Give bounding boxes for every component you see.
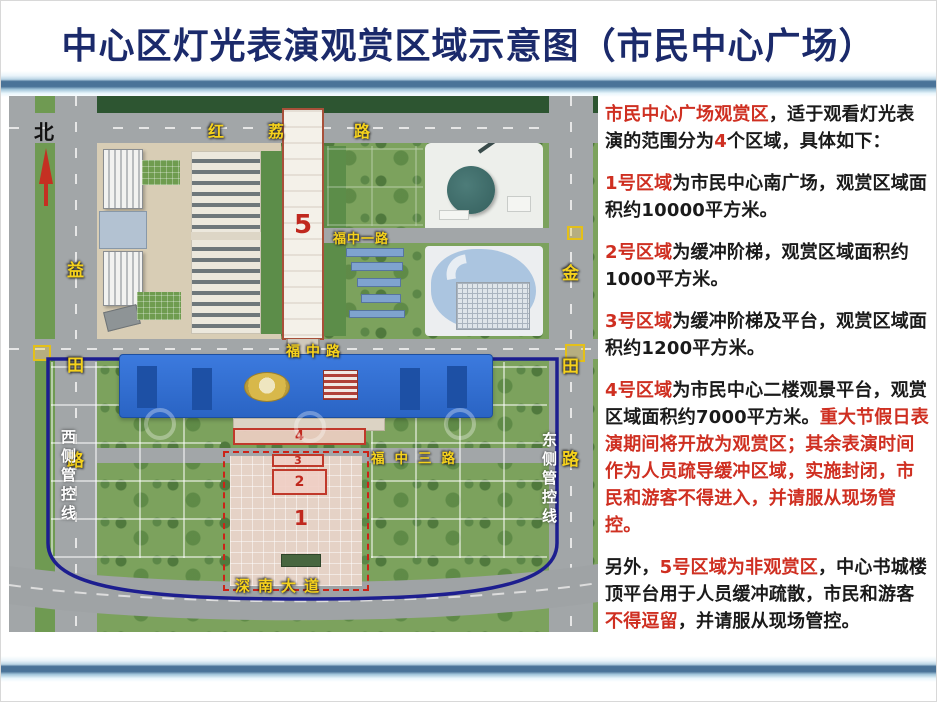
golden-disc-roof <box>244 372 290 402</box>
text-segment: 不得逗留 <box>605 611 678 632</box>
zone-2-marker: 2 <box>272 469 327 495</box>
text-segment: 市民中心广场观赏区 <box>605 104 769 125</box>
zone-5-paragraph: 另外，5号区域为非观赏区，中心书城楼顶平台用于人员缓冲疏散，市民和游客不得逗留，… <box>605 554 929 635</box>
legend-text-panel: 市民中心广场观赏区，适于观看灯光表演的范围分为4个区域，具体如下： 1号区域为市… <box>605 101 929 650</box>
road-char: 田 <box>562 352 579 377</box>
north-arrow-tail <box>44 184 48 206</box>
road-label-shennan: 深南大道 <box>235 575 327 596</box>
zone-2-number: 2 <box>295 475 305 489</box>
control-line-label-east: 东侧管控线 <box>539 432 560 527</box>
zone-3-marker: 3 <box>272 454 324 467</box>
text-segment: 2号区域 <box>605 242 672 263</box>
roof-panel-1 <box>137 366 157 408</box>
road-label-jintian: 金 田 路 <box>562 259 579 470</box>
road-char: 益 <box>67 256 84 281</box>
road-char: 金 <box>562 259 579 284</box>
text-segment: 4 <box>714 131 727 152</box>
title-divider-bar <box>1 71 936 97</box>
roof-panel-2 <box>192 368 212 410</box>
watermark <box>144 408 176 440</box>
watermark <box>444 408 476 440</box>
zone-4-paragraph: 4号区域为市民中心二楼观景平台，观赏区域面积约7000平方米。重大节假日表演期间… <box>605 377 929 539</box>
road-label-fuzhong1: 福中一路 <box>333 228 389 247</box>
infographic-slide: 中心区灯光表演观赏区域示意图（市民中心广场） <box>0 0 937 702</box>
plaza-gate-structure <box>281 554 321 567</box>
text-segment: 5号区域为非观赏区 <box>660 557 818 578</box>
roof-panel-3 <box>400 368 420 410</box>
north-arrow-icon <box>39 148 53 184</box>
text-segment: 1号区域 <box>605 173 672 194</box>
zone-2-paragraph: 2号区域为缓冲阶梯，观赏区域面积约1000平方米。 <box>605 239 929 293</box>
road-char: 路 <box>562 445 579 470</box>
north-label: 北 <box>34 116 54 145</box>
control-line-label-west: 西侧管控线 <box>58 429 79 524</box>
text-segment: 个区域，具体如下： <box>727 131 891 152</box>
road-label-fuzhong3: 福中三路 <box>371 447 465 467</box>
text-segment: 另外， <box>605 557 660 578</box>
zone-3-number: 3 <box>294 455 302 466</box>
road-char: 路 <box>354 118 370 142</box>
road-label-fuzhong: 福中路 <box>286 341 346 361</box>
page-title: 中心区灯光表演观赏区域示意图（市民中心广场） <box>1 17 936 69</box>
road-char: 田 <box>67 351 84 376</box>
road-char: 红 <box>208 118 224 142</box>
intro-paragraph: 市民中心广场观赏区，适于观看灯光表演的范围分为4个区域，具体如下： <box>605 101 929 155</box>
roof-panel-4 <box>447 366 467 408</box>
zone-3-paragraph: 3号区域为缓冲阶梯及平台，观赏区域面积约1200平方米。 <box>605 308 929 362</box>
zone-1-marker: 1 <box>291 506 311 530</box>
watermark <box>294 411 326 443</box>
red-striped-hall <box>323 370 358 400</box>
text-segment: 4号区域 <box>605 380 672 401</box>
text-segment: 3号区域 <box>605 311 672 332</box>
zone-1-paragraph: 1号区域为市民中心南广场，观赏区域面积约10000平方米。 <box>605 170 929 224</box>
footer-divider-bar <box>1 656 936 682</box>
text-segment: ，并请服从现场管控。 <box>678 611 860 632</box>
road-label-hongli: 红 荔 路 <box>208 118 370 142</box>
road-char: 荔 <box>268 118 284 142</box>
site-map: 5 4 3 2 1 北 <box>9 96 598 632</box>
civic-center-building <box>119 354 493 418</box>
